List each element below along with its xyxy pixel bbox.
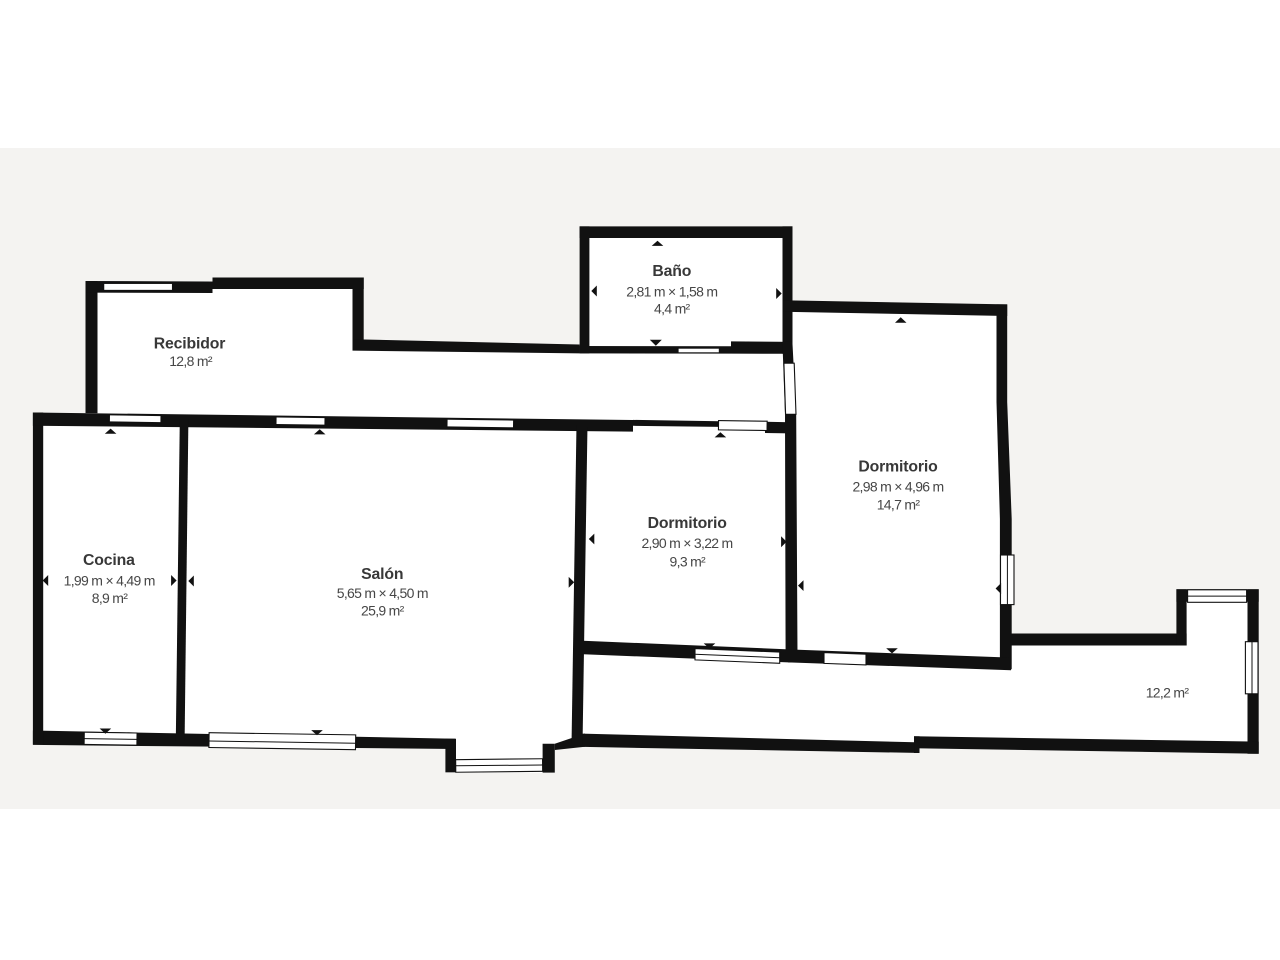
svg-text:Salón: Salón	[361, 566, 403, 583]
svg-text:2,98 m × 4,96 m: 2,98 m × 4,96 m	[852, 478, 943, 494]
svg-text:Dormitorio: Dormitorio	[858, 458, 938, 475]
svg-text:25,9 m²: 25,9 m²	[361, 602, 405, 618]
svg-text:2,81 m × 1,58 m: 2,81 m × 1,58 m	[626, 283, 717, 299]
svg-text:Recibidor: Recibidor	[154, 336, 226, 353]
svg-text:9,3 m²: 9,3 m²	[670, 554, 707, 570]
svg-text:Baño: Baño	[652, 263, 691, 280]
svg-text:12,8 m²: 12,8 m²	[169, 353, 213, 369]
svg-text:Dormitorio: Dormitorio	[648, 515, 728, 532]
svg-text:Cocina: Cocina	[83, 552, 135, 569]
svg-text:4,4 m²: 4,4 m²	[654, 300, 691, 316]
svg-text:12,2 m²: 12,2 m²	[1146, 685, 1190, 701]
svg-text:2,90 m × 3,22 m: 2,90 m × 3,22 m	[641, 535, 732, 551]
svg-text:14,7 m²: 14,7 m²	[877, 497, 921, 513]
svg-text:1,99 m × 4,49 m: 1,99 m × 4,49 m	[64, 572, 155, 588]
svg-text:8,9 m²: 8,9 m²	[92, 590, 129, 606]
svg-text:5,65 m × 4,50 m: 5,65 m × 4,50 m	[337, 585, 428, 601]
